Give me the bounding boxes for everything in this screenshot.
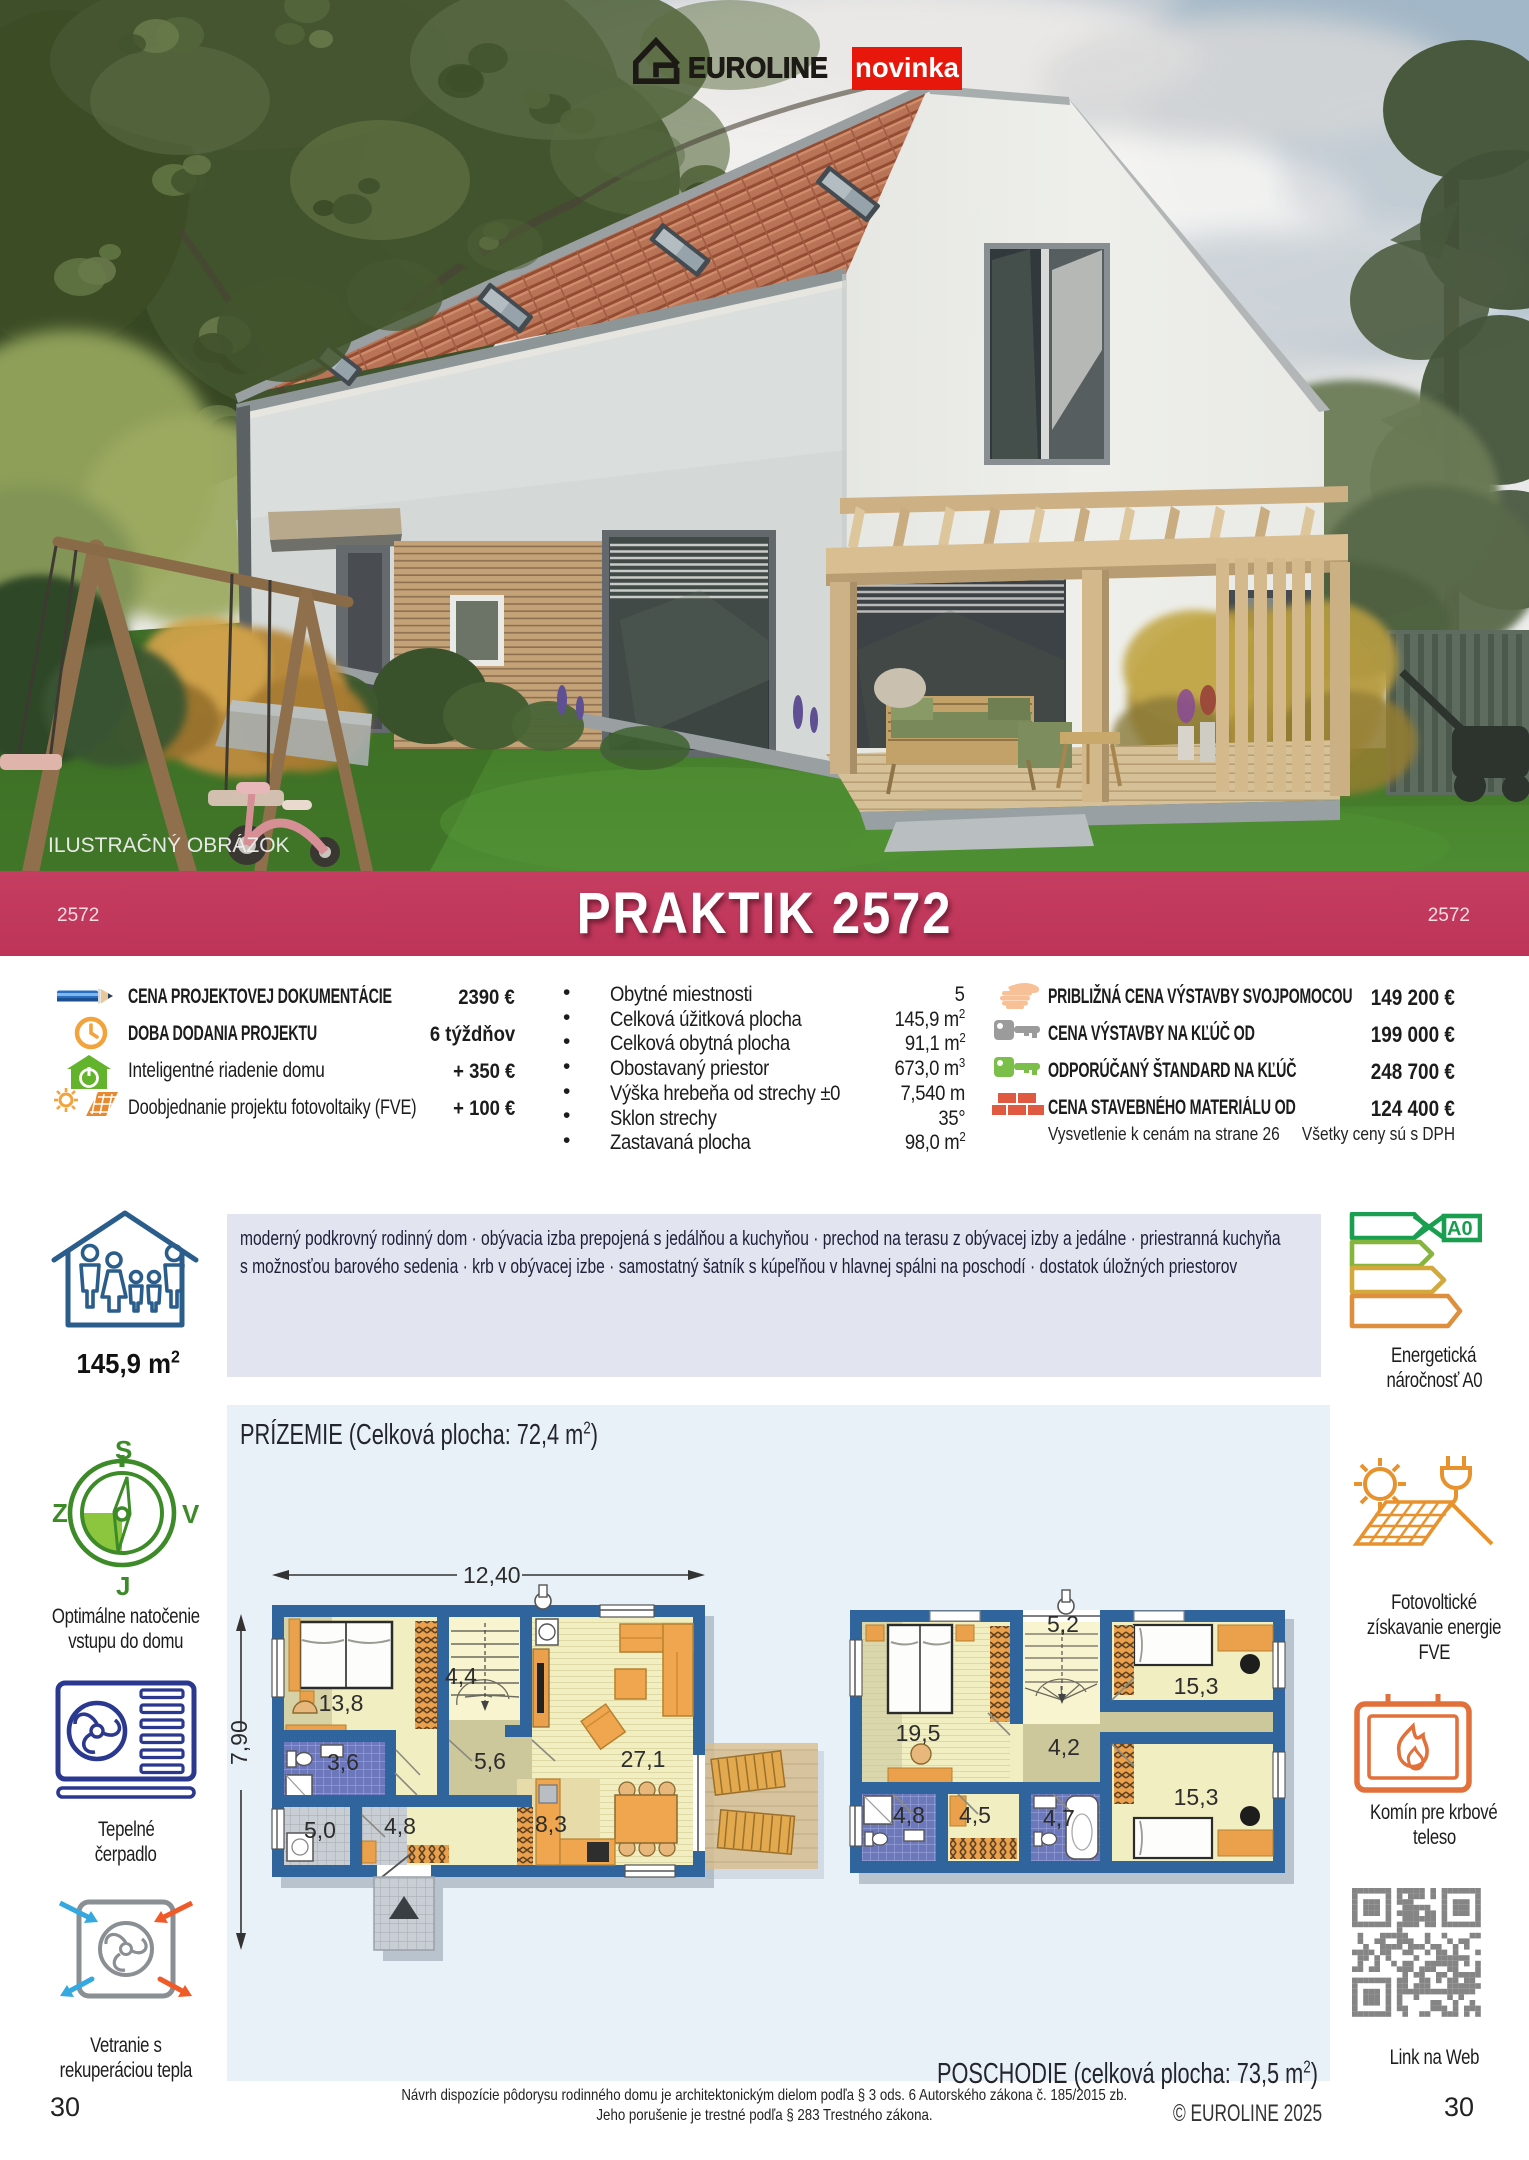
svg-text:5,6: 5,6 [474, 1748, 506, 1774]
svg-text:4,5: 4,5 [959, 1802, 991, 1828]
svg-text:Z: Z [52, 1498, 68, 1528]
svg-text:5,0: 5,0 [304, 1817, 336, 1843]
svg-text:EUROLINE: EUROLINE [688, 53, 828, 85]
svg-text:V: V [182, 1499, 200, 1529]
svg-text:A0: A0 [1447, 1218, 1473, 1240]
svg-text:15,3: 15,3 [1174, 1673, 1219, 1699]
svg-text:27,1: 27,1 [621, 1746, 666, 1772]
svg-text:19,5: 19,5 [896, 1720, 941, 1746]
svg-text:4,8: 4,8 [384, 1813, 416, 1839]
svg-text:15,3: 15,3 [1174, 1784, 1219, 1810]
svg-text:12,40: 12,40 [463, 1562, 521, 1588]
svg-text:4,4: 4,4 [445, 1663, 477, 1689]
svg-text:3,6: 3,6 [327, 1749, 359, 1775]
svg-text:4,2: 4,2 [1048, 1734, 1080, 1760]
svg-text:7,90: 7,90 [227, 1720, 252, 1765]
svg-text:J: J [116, 1571, 130, 1600]
svg-text:ILUSTRAČNÝ OBRÁZOK: ILUSTRAČNÝ OBRÁZOK [48, 834, 290, 857]
svg-text:13,8: 13,8 [319, 1690, 364, 1716]
svg-text:4,8: 4,8 [893, 1802, 925, 1828]
svg-text:8,3: 8,3 [535, 1811, 567, 1837]
svg-text:4,7: 4,7 [1043, 1805, 1075, 1831]
svg-text:5,2: 5,2 [1047, 1611, 1079, 1637]
